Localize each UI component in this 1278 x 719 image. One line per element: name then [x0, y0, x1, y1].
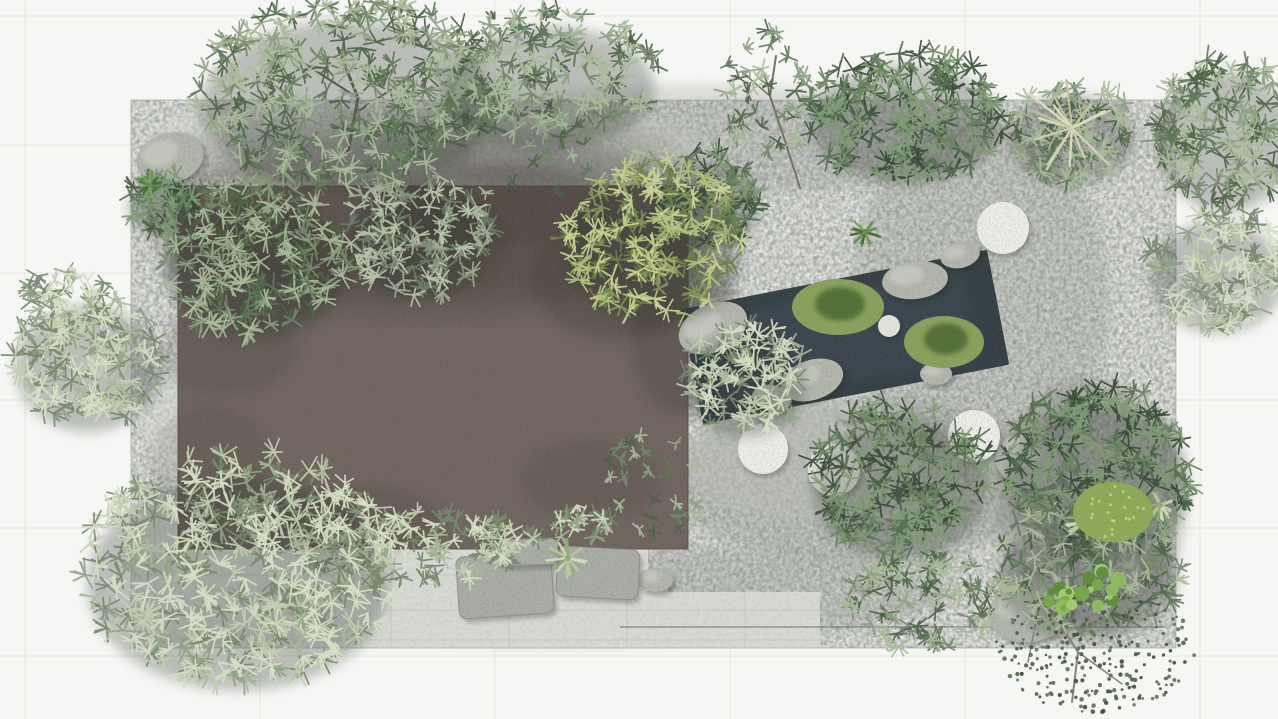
moss-mound — [1073, 482, 1153, 542]
moss-island — [904, 316, 984, 368]
moss-island — [792, 279, 884, 335]
garden-scene-canvas — [0, 0, 1278, 719]
garden-aerial-render — [0, 0, 1278, 719]
pond-stepping-stone — [878, 315, 900, 337]
